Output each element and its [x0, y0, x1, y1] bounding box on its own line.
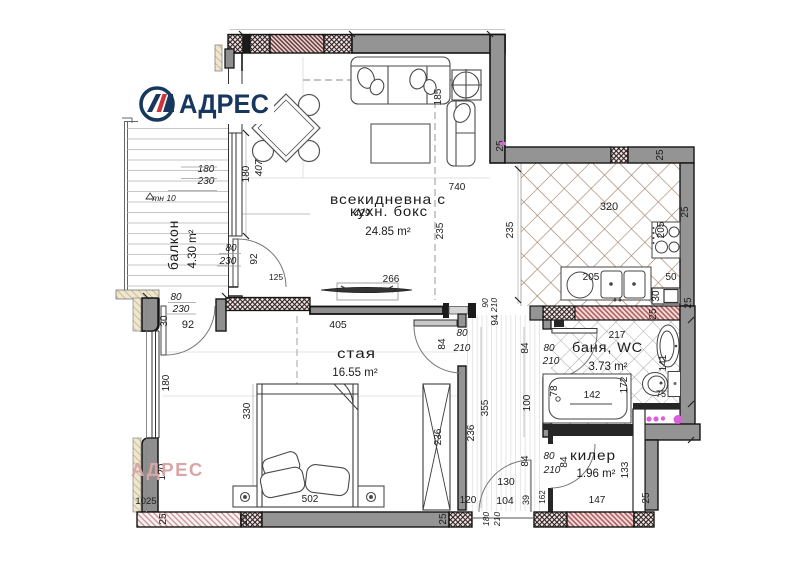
svg-text:185: 185: [433, 88, 444, 105]
svg-text:тн 10: тн 10: [152, 193, 176, 203]
svg-text:320: 320: [600, 201, 618, 213]
svg-text:АДРЕС: АДРЕС: [179, 89, 269, 119]
svg-text:25: 25: [495, 140, 506, 152]
svg-text:230: 230: [172, 304, 190, 315]
svg-text:75: 75: [656, 389, 666, 399]
svg-text:429: 429: [354, 208, 371, 219]
svg-text:78: 78: [549, 385, 560, 397]
svg-text:25: 25: [655, 149, 666, 161]
svg-text:80: 80: [543, 451, 555, 462]
svg-text:172: 172: [619, 376, 630, 393]
svg-text:80: 80: [225, 243, 237, 254]
svg-text:266: 266: [383, 274, 400, 285]
svg-text:125: 125: [269, 272, 283, 282]
svg-text:142: 142: [584, 390, 601, 401]
svg-text:205: 205: [656, 221, 667, 238]
svg-text:180: 180: [198, 164, 215, 175]
svg-text:25: 25: [641, 492, 652, 504]
svg-text:141: 141: [658, 354, 669, 371]
svg-text:230: 230: [197, 176, 215, 187]
svg-text:80: 80: [543, 343, 555, 354]
svg-text:92: 92: [249, 253, 260, 265]
svg-text:330: 330: [242, 402, 253, 419]
svg-text:205: 205: [583, 272, 600, 283]
svg-text:1025: 1025: [135, 496, 156, 507]
svg-text:210: 210: [542, 356, 560, 367]
svg-text:50: 50: [665, 272, 677, 283]
svg-text:16.55 m²: 16.55 m²: [332, 367, 378, 379]
svg-text:230: 230: [219, 256, 237, 267]
svg-text:баня, WC: баня, WC: [572, 339, 643, 355]
svg-text:килер: килер: [570, 447, 616, 463]
svg-text:405: 405: [329, 319, 347, 331]
svg-text:25: 25: [158, 513, 169, 525]
svg-text:104: 104: [496, 495, 514, 507]
svg-text:235: 235: [505, 221, 516, 238]
svg-text:210: 210: [492, 512, 502, 527]
svg-text:80: 80: [456, 328, 468, 339]
svg-text:236: 236: [466, 424, 477, 441]
svg-text:355: 355: [480, 399, 491, 416]
svg-text:740: 740: [449, 182, 466, 193]
svg-text:147: 147: [589, 495, 606, 506]
svg-text:84: 84: [559, 456, 570, 468]
svg-text:3.73 m²: 3.73 m²: [589, 361, 628, 373]
svg-text:25: 25: [683, 297, 694, 309]
svg-text:84: 84: [520, 342, 531, 354]
svg-text:130: 130: [497, 476, 515, 488]
svg-text:25: 25: [438, 513, 449, 525]
svg-text:180: 180: [481, 512, 491, 526]
svg-text:80: 80: [170, 292, 182, 303]
svg-text:236: 236: [433, 428, 444, 445]
svg-text:210: 210: [489, 298, 499, 313]
svg-text:120: 120: [460, 495, 477, 506]
svg-text:502: 502: [302, 494, 319, 505]
svg-text:24.85 m²: 24.85 m²: [365, 226, 411, 238]
svg-text:стая: стая: [337, 345, 376, 361]
svg-text:25: 25: [648, 308, 659, 320]
svg-text:1.96 m²: 1.96 m²: [577, 468, 616, 480]
svg-text:балкон: балкон: [165, 220, 181, 270]
svg-text:4.30 m²: 4.30 m²: [187, 229, 199, 268]
svg-text:84: 84: [437, 338, 448, 350]
svg-text:39: 39: [521, 495, 531, 505]
svg-text:210: 210: [453, 343, 471, 354]
svg-text:30: 30: [159, 315, 170, 327]
svg-text:407: 407: [254, 159, 265, 176]
svg-text:217: 217: [609, 330, 626, 341]
svg-text:235: 235: [435, 222, 446, 239]
svg-text:180: 180: [241, 165, 252, 182]
svg-text:92: 92: [182, 319, 194, 331]
svg-text:100: 100: [522, 394, 533, 411]
svg-text:25: 25: [239, 514, 250, 526]
svg-text:84: 84: [520, 455, 531, 467]
svg-text:25: 25: [680, 206, 691, 218]
svg-text:АДРЕС: АДРЕС: [131, 459, 204, 480]
svg-text:180: 180: [161, 374, 172, 391]
svg-text:133: 133: [620, 461, 631, 478]
svg-text:30: 30: [651, 290, 662, 302]
svg-text:94: 94: [490, 314, 501, 326]
svg-text:162: 162: [538, 490, 547, 504]
